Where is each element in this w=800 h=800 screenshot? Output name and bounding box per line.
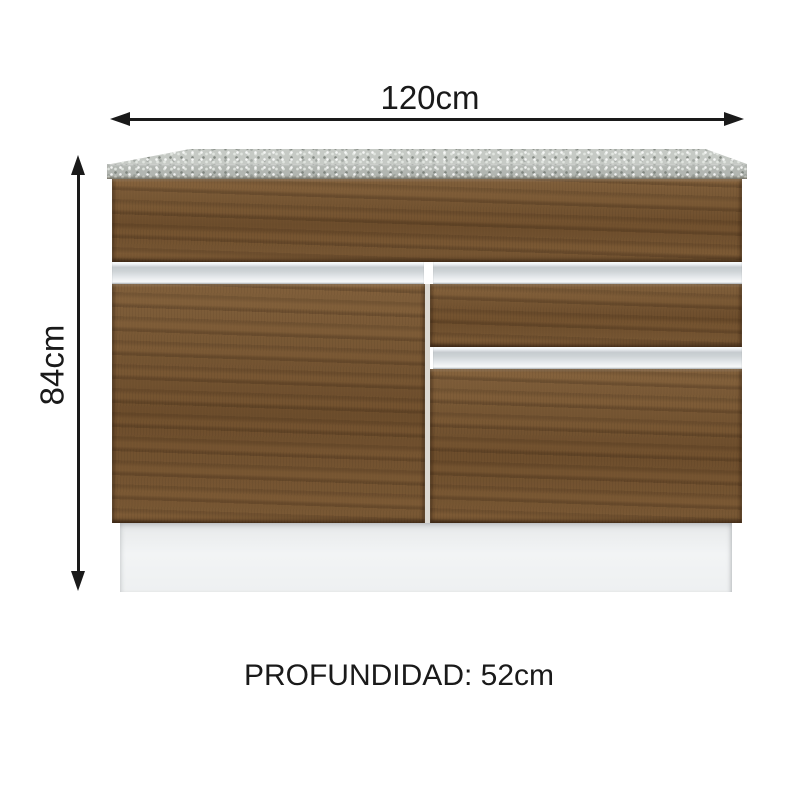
bottom-drawer-handle-strip — [433, 347, 742, 369]
top-drawer-handle-strip — [433, 262, 742, 284]
countertop-top-surface — [107, 149, 747, 164]
countertop-front-edge — [107, 164, 747, 179]
cabinet-top-panel — [112, 179, 742, 262]
height-dimension-label: 84cm — [36, 325, 69, 406]
cabinet-left-door — [112, 284, 425, 523]
door-handle-strip — [112, 262, 424, 284]
arrow-line — [77, 170, 80, 576]
arrow-line — [125, 118, 729, 121]
arrow-head-down-icon — [71, 571, 85, 591]
cabinet-bottom-drawer — [430, 369, 742, 523]
arrow-head-right-icon — [724, 112, 744, 126]
width-dimension-arrow — [110, 112, 744, 126]
depth-dimension-label: PROFUNDIDAD: 52cm — [244, 661, 554, 691]
product-dimension-diagram: 120cm 84cm PROFUNDIDAD: 52cm — [0, 0, 800, 800]
height-dimension-arrow — [71, 155, 85, 591]
cabinet-plinth-base — [120, 523, 732, 592]
width-dimension-label: 120cm — [380, 81, 479, 114]
cabinet-top-drawer — [430, 284, 742, 347]
